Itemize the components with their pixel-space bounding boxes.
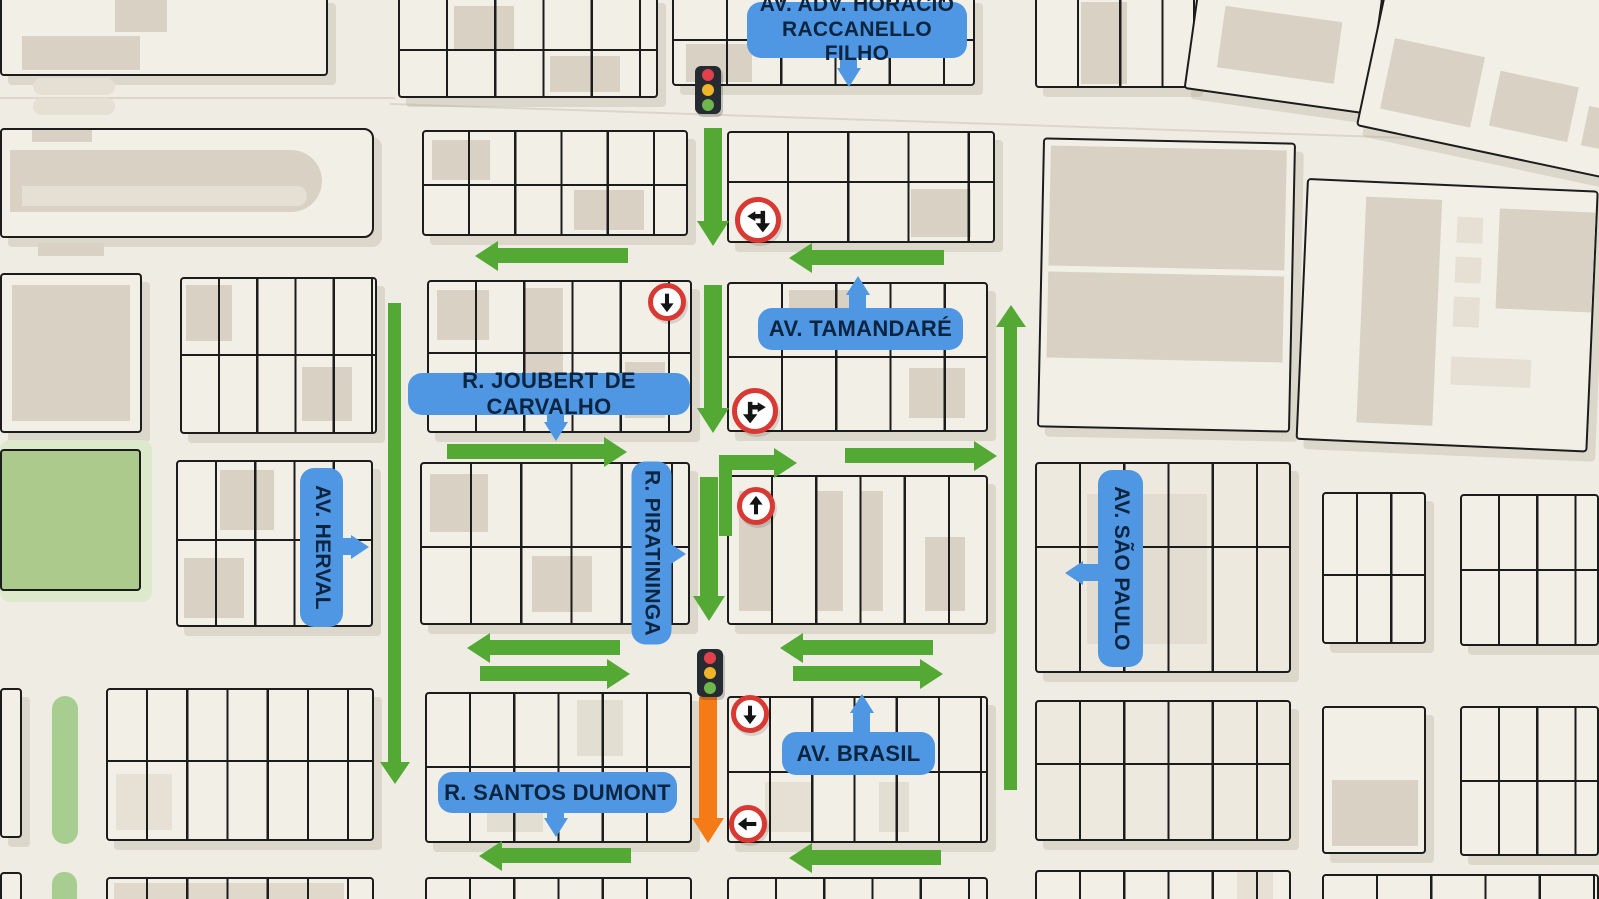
city-block bbox=[106, 877, 374, 899]
flow-arrow-down-icon bbox=[704, 128, 722, 222]
red-light bbox=[704, 652, 716, 664]
building-footprint bbox=[1453, 297, 1480, 328]
sign-one-way-up-icon bbox=[737, 487, 775, 525]
building-footprint bbox=[1332, 780, 1418, 846]
street-label-av-herval: AV. HERVAL bbox=[300, 468, 343, 627]
building-footprint bbox=[550, 56, 620, 92]
building-footprint bbox=[879, 782, 909, 832]
sign-straight-down-or-left-icon bbox=[735, 197, 781, 243]
building-footprint bbox=[432, 140, 490, 180]
park bbox=[0, 449, 141, 591]
city-block bbox=[0, 688, 22, 838]
city-block bbox=[1035, 0, 1195, 88]
label-pointer-left-icon bbox=[1082, 564, 1098, 581]
building-footprint bbox=[574, 190, 644, 230]
building-footprint bbox=[817, 491, 843, 611]
building-footprint bbox=[1455, 257, 1482, 284]
street-label-r-santos-dumont: R. SANTOS DUMONT bbox=[438, 772, 677, 813]
building-footprint bbox=[765, 782, 813, 832]
flow-arrow-right-icon bbox=[480, 666, 608, 681]
building-footprint bbox=[116, 774, 172, 830]
building-footprint bbox=[1048, 146, 1286, 271]
yellow-light bbox=[704, 667, 716, 679]
city-block bbox=[0, 872, 22, 899]
street-label-r-piratininga: R. PIRATININGA bbox=[632, 462, 672, 645]
flow-arrow-right-icon bbox=[845, 448, 975, 463]
city-block bbox=[1035, 700, 1291, 841]
city-block bbox=[0, 273, 142, 433]
green-light bbox=[702, 99, 714, 111]
flow-arrow-left-icon bbox=[489, 640, 620, 655]
sign-one-way-down-icon bbox=[648, 283, 686, 321]
building-footprint bbox=[911, 189, 971, 237]
street-label-av-brasil: AV. BRASIL bbox=[782, 732, 935, 775]
building-footprint bbox=[114, 883, 344, 899]
yellow-light bbox=[702, 84, 714, 96]
building-footprint bbox=[1217, 6, 1342, 84]
terminal-building-detail bbox=[22, 186, 307, 206]
building-footprint bbox=[1489, 71, 1579, 142]
building-footprint bbox=[454, 6, 514, 50]
city-block bbox=[1296, 178, 1599, 452]
city-block bbox=[180, 277, 377, 434]
building-footprint bbox=[532, 556, 592, 612]
green-median bbox=[52, 872, 77, 899]
building-footprint bbox=[186, 285, 232, 341]
street-label-av-adv-horacio-raccanello-filho: AV. ADV. HORÁCIO RACCANELLO FILHO bbox=[747, 2, 967, 58]
building-footprint bbox=[1456, 217, 1483, 244]
red-light bbox=[702, 69, 714, 81]
flow-arrow-long-down-icon bbox=[388, 303, 401, 763]
city-block bbox=[422, 130, 688, 236]
building-footprint bbox=[38, 243, 104, 256]
city-block bbox=[727, 877, 988, 899]
building-footprint bbox=[184, 558, 244, 618]
city-block bbox=[1184, 0, 1384, 115]
city-map-canvas: AV. ADV. HORÁCIO RACCANELLO FILHO AV. TA… bbox=[0, 0, 1599, 899]
city-block bbox=[1322, 706, 1426, 854]
sign-straight-down-or-right-icon bbox=[732, 388, 778, 434]
building-footprint bbox=[861, 491, 883, 611]
building-footprint bbox=[430, 474, 488, 532]
street-label-line: RACCANELLO FILHO bbox=[753, 18, 961, 68]
city-block bbox=[1322, 874, 1599, 899]
building-footprint bbox=[437, 290, 489, 340]
flow-arrow-down-icon bbox=[704, 285, 722, 409]
terminal-block bbox=[0, 128, 374, 238]
flow-arrow-left-icon bbox=[811, 850, 941, 865]
traffic-light-icon bbox=[695, 66, 721, 114]
city-block bbox=[1460, 706, 1599, 856]
sign-one-way-down-icon bbox=[731, 695, 769, 733]
flow-arrow-left-icon bbox=[811, 250, 944, 265]
building-footprint bbox=[925, 537, 965, 611]
traffic-light-icon bbox=[697, 649, 723, 697]
building-footprint bbox=[12, 285, 130, 421]
flow-arrow-left-icon bbox=[501, 848, 631, 863]
building-footprint bbox=[1046, 272, 1284, 363]
city-block bbox=[1322, 492, 1426, 644]
street-label-line: AV. ADV. HORÁCIO bbox=[760, 0, 955, 18]
green-median bbox=[52, 696, 78, 844]
flow-arrow-right-icon bbox=[447, 444, 605, 459]
sign-one-way-left-icon bbox=[729, 805, 767, 843]
city-block bbox=[0, 0, 328, 76]
building-footprint bbox=[220, 470, 274, 530]
building-footprint bbox=[32, 128, 92, 142]
flow-arrow-turn-stem bbox=[719, 470, 732, 536]
city-block bbox=[1035, 870, 1291, 899]
flow-arrow-down-orange-icon bbox=[699, 697, 717, 819]
bus-platform bbox=[33, 78, 115, 95]
flow-arrow-up-then-right-icon bbox=[719, 455, 775, 470]
building-footprint bbox=[1081, 2, 1127, 84]
street-label-av-tamandare: AV. TAMANDARÉ bbox=[758, 308, 963, 350]
city-block bbox=[398, 0, 658, 98]
city-block bbox=[425, 877, 692, 899]
street-label-r-joubert-de-carvalho: R. JOUBERT DE CARVALHO bbox=[408, 373, 690, 415]
flow-arrow-left-icon bbox=[497, 248, 628, 263]
city-block bbox=[1460, 494, 1599, 646]
flow-arrow-right-icon bbox=[793, 666, 921, 681]
flow-arrow-long-up-icon bbox=[1004, 326, 1017, 790]
flow-arrow-down-icon bbox=[700, 477, 718, 597]
city-block bbox=[1356, 0, 1599, 182]
label-pointer-up-icon bbox=[853, 712, 870, 732]
building-footprint bbox=[1380, 38, 1485, 128]
city-block bbox=[1037, 137, 1296, 432]
building-footprint bbox=[22, 36, 140, 70]
city-block bbox=[106, 688, 374, 841]
building-footprint bbox=[1450, 356, 1531, 387]
street-label-av-sao-paulo: AV. SÃO PAULO bbox=[1098, 470, 1143, 667]
flow-arrow-left-icon bbox=[802, 640, 933, 655]
building-footprint bbox=[1237, 870, 1273, 899]
building-footprint bbox=[577, 700, 623, 756]
building-footprint bbox=[1356, 197, 1442, 426]
building-footprint bbox=[909, 368, 965, 418]
building-footprint bbox=[302, 367, 352, 421]
bus-platform bbox=[33, 98, 115, 115]
building-footprint bbox=[1581, 106, 1599, 153]
green-light bbox=[704, 682, 716, 694]
building-footprint bbox=[1495, 208, 1595, 312]
building-footprint bbox=[115, 0, 167, 32]
